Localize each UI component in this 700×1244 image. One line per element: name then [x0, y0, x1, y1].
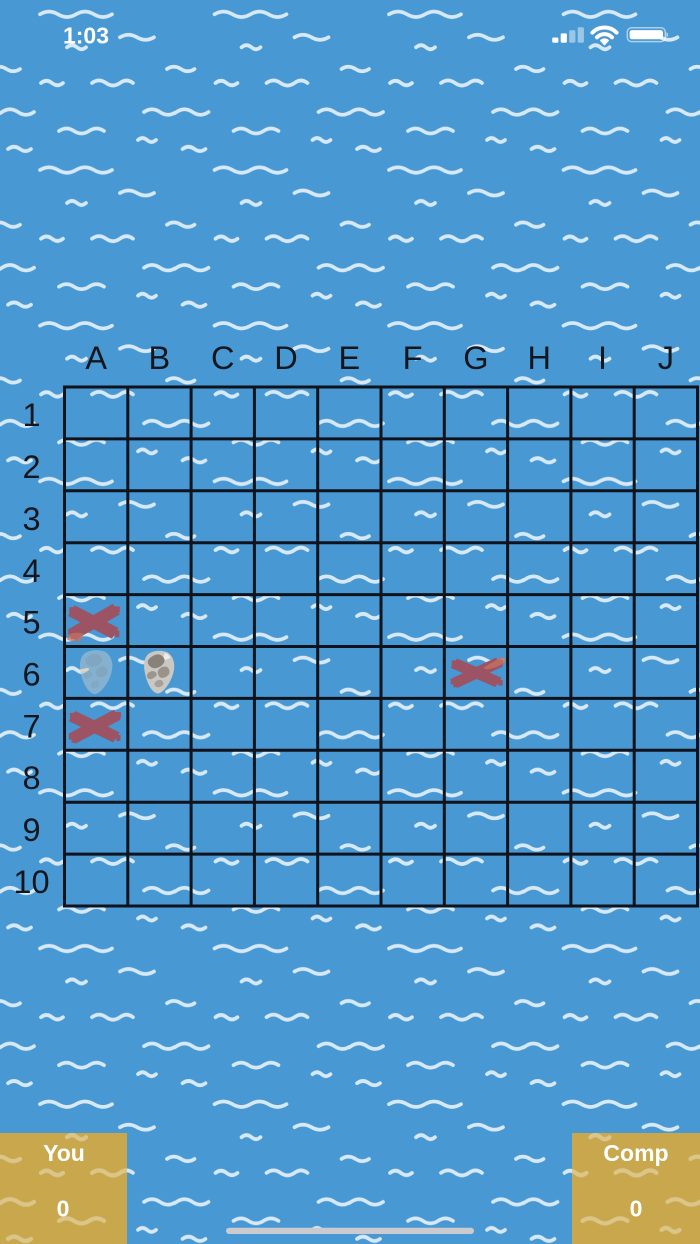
svg-text:You: You: [43, 1140, 85, 1166]
svg-text:E: E: [338, 340, 360, 376]
svg-text:8: 8: [22, 760, 40, 796]
svg-text:5: 5: [22, 605, 40, 641]
svg-text:2: 2: [22, 449, 40, 485]
svg-text:1:03: 1:03: [63, 23, 109, 49]
svg-text:4: 4: [22, 553, 40, 589]
svg-text:9: 9: [22, 812, 40, 848]
svg-text:H: H: [527, 340, 550, 376]
svg-text:G: G: [463, 340, 488, 376]
svg-text:D: D: [274, 340, 297, 376]
svg-text:J: J: [658, 340, 674, 376]
svg-text:I: I: [598, 340, 607, 376]
svg-text:6: 6: [22, 657, 40, 693]
svg-text:7: 7: [22, 709, 40, 745]
svg-text:0: 0: [57, 1196, 70, 1222]
svg-text:1: 1: [22, 397, 40, 433]
svg-text:A: A: [85, 340, 107, 376]
svg-text:10: 10: [13, 864, 49, 900]
svg-text:0: 0: [630, 1196, 643, 1222]
svg-text:Comp: Comp: [603, 1140, 668, 1166]
svg-text:F: F: [403, 340, 423, 376]
svg-text:3: 3: [22, 501, 40, 537]
svg-text:B: B: [149, 340, 171, 376]
svg-text:C: C: [211, 340, 234, 376]
